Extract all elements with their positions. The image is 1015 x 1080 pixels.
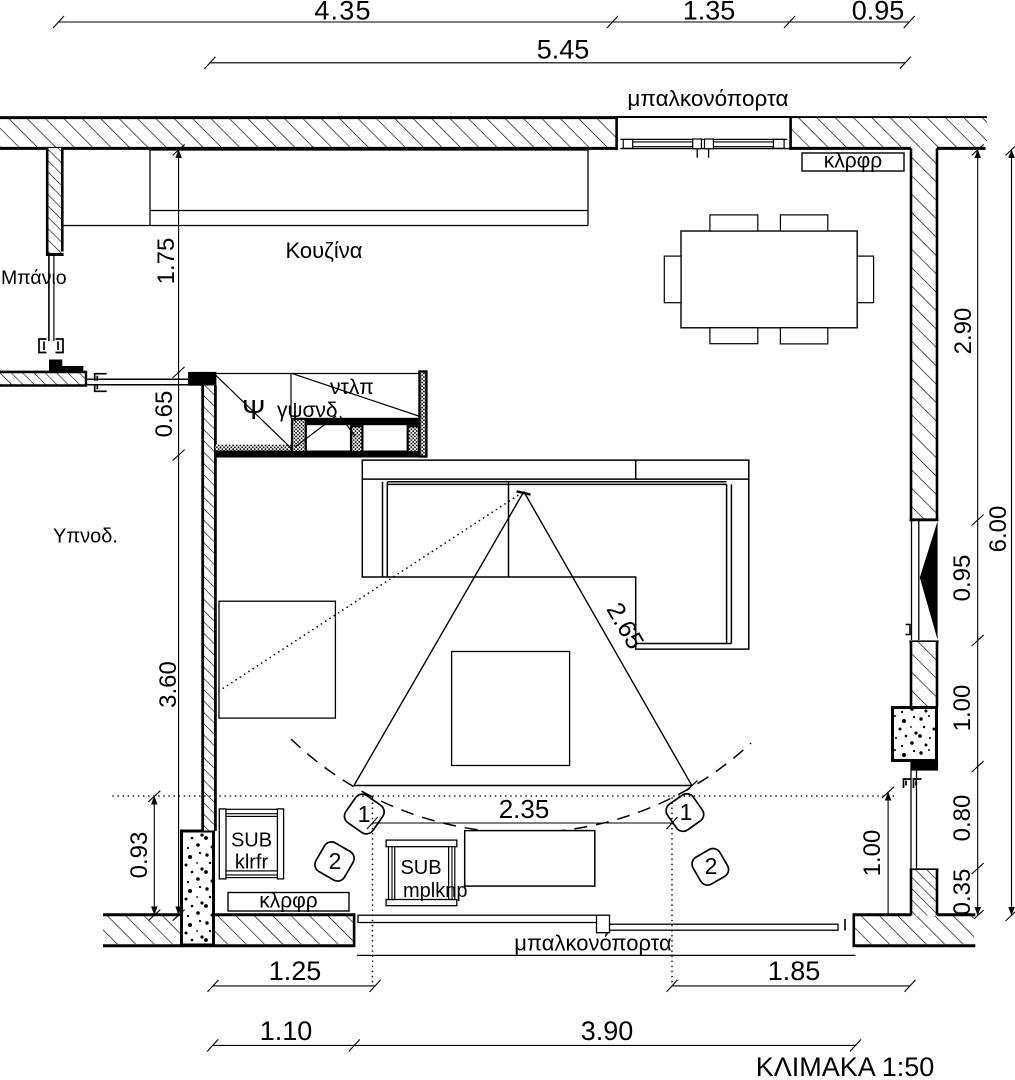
svg-text:1.00: 1.00 xyxy=(949,685,976,732)
svg-text:0.65: 0.65 xyxy=(151,391,178,438)
svg-text:γψσνδ: γψσνδ xyxy=(277,399,338,422)
svg-text:SUB: SUB xyxy=(231,830,272,852)
svg-text:2.35: 2.35 xyxy=(499,794,550,824)
svg-text:5.45: 5.45 xyxy=(537,35,590,65)
svg-text:1.75: 1.75 xyxy=(153,238,180,285)
svg-text:ντλπ: ντλπ xyxy=(330,376,374,399)
svg-text:1.10: 1.10 xyxy=(260,1016,313,1046)
svg-text:Ψ: Ψ xyxy=(242,394,265,425)
svg-text:0.95: 0.95 xyxy=(949,555,976,602)
svg-text:SUB: SUB xyxy=(400,857,441,879)
svg-text:mplknp: mplknp xyxy=(403,880,467,902)
svg-text:4.35: 4.35 xyxy=(314,0,371,26)
svg-text:0.93: 0.93 xyxy=(126,832,153,879)
svg-text:Κουζίνα: Κουζίνα xyxy=(286,238,363,263)
svg-text:klrfr: klrfr xyxy=(235,852,269,874)
svg-text:ΚΛΙΜΑΚΑ 1:50: ΚΛΙΜΑΚΑ 1:50 xyxy=(756,1052,935,1080)
svg-text:κλρφρ: κλρφρ xyxy=(259,890,318,913)
svg-text:1.35: 1.35 xyxy=(683,0,736,26)
svg-text:2: 2 xyxy=(329,848,342,874)
svg-text:Μπάνιο: Μπάνιο xyxy=(1,267,67,289)
svg-text:2.90: 2.90 xyxy=(950,308,977,355)
svg-text:κλρφρ: κλρφρ xyxy=(824,150,883,173)
svg-text:3.60: 3.60 xyxy=(155,661,182,708)
svg-text:3.90: 3.90 xyxy=(581,1016,634,1046)
svg-text:μπαλκονόπορτα: μπαλκονόπορτα xyxy=(514,931,672,956)
svg-text:1: 1 xyxy=(680,799,693,825)
svg-text:1.25: 1.25 xyxy=(269,956,322,986)
svg-text:1: 1 xyxy=(358,801,371,827)
svg-text:0.80: 0.80 xyxy=(949,795,976,842)
svg-text:Υπνοδ.: Υπνοδ. xyxy=(53,526,118,548)
svg-text:1.85: 1.85 xyxy=(768,956,821,986)
svg-text:0.35: 0.35 xyxy=(949,869,976,916)
svg-text:0.95: 0.95 xyxy=(852,0,905,26)
svg-text:1.00: 1.00 xyxy=(859,830,886,877)
svg-text:6.00: 6.00 xyxy=(985,506,1012,553)
svg-text:2: 2 xyxy=(705,853,718,879)
svg-text:μπαλκονόπορτα: μπαλκονόπορτα xyxy=(627,86,788,111)
